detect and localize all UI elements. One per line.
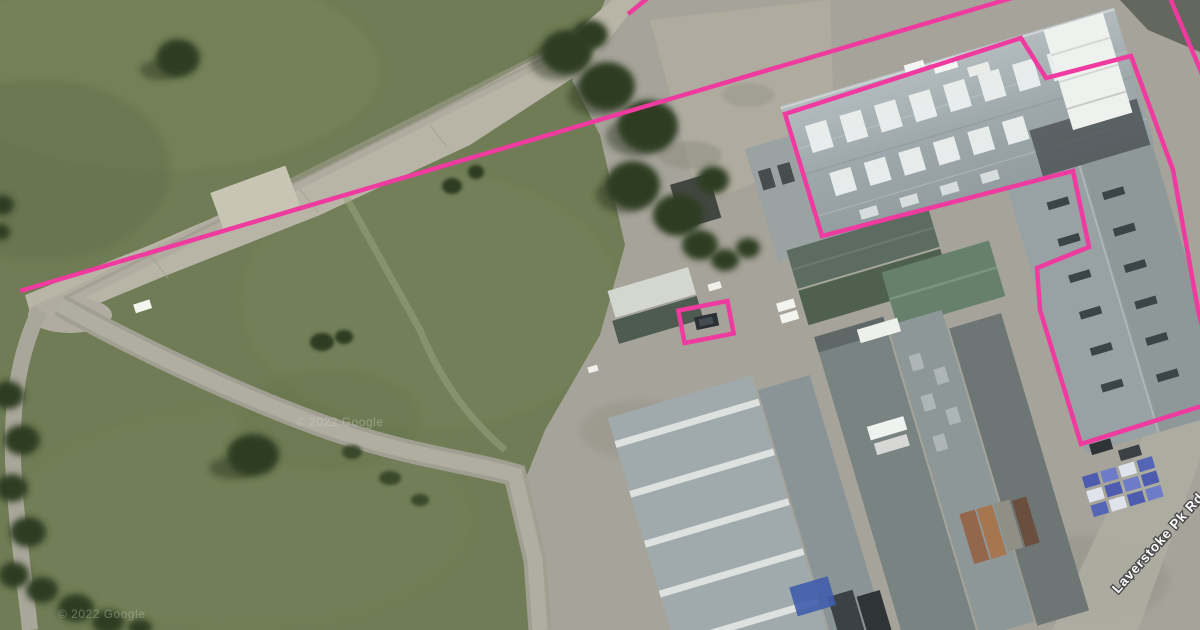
google-attribution-top: © 2022 Google — [296, 415, 383, 429]
field-tree-2 — [227, 434, 279, 476]
field-tree — [156, 39, 200, 77]
google-attribution-bottom: © 2022 Google — [58, 607, 145, 621]
satellite-image: © 2022 Google © 2022 Google Laverstoke P… — [0, 0, 1200, 630]
map-canvas: © 2022 Google © 2022 Google Laverstoke P… — [0, 0, 1200, 630]
